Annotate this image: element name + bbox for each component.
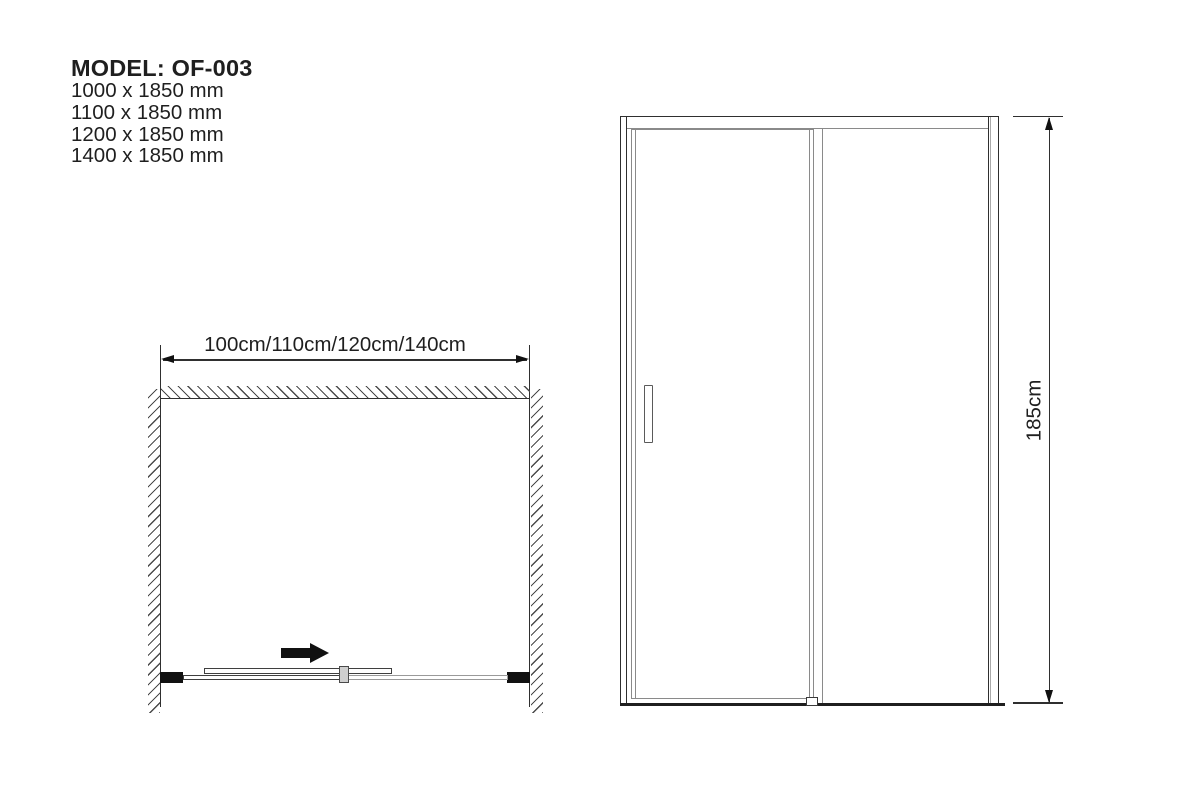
size-option: 1000 x 1850 mm — [71, 80, 224, 102]
size-option: 1400 x 1850 mm — [71, 145, 224, 167]
dimension-arrowhead-up-icon — [1045, 117, 1053, 130]
door-handle — [644, 385, 654, 443]
sliding-door-panel — [631, 129, 814, 700]
dimension-arrowhead-down-icon — [1045, 690, 1053, 703]
panel-clip — [339, 666, 350, 683]
dimension-arrowhead-right-icon — [516, 355, 529, 363]
slide-direction-arrowhead-icon — [310, 643, 329, 663]
dimension-arrowhead-left-icon — [161, 355, 174, 363]
sliding-panel-plan — [204, 668, 392, 674]
plan-dimension-line — [163, 359, 527, 360]
wall-hatch-top — [161, 386, 530, 399]
height-dimension-tick-bottom — [1013, 702, 1063, 703]
top-rail — [620, 116, 999, 129]
door-stile-right-line — [809, 130, 810, 699]
door-roller — [806, 697, 819, 707]
track-rail-plan — [347, 675, 508, 680]
height-dimension-label: 185cm — [1023, 368, 1046, 452]
technical-drawing-page: MODEL: OF-003 1000 x 1850 mm 1100 x 1850… — [0, 0, 1200, 800]
plan-width-dimension-label: 100cm/110cm/120cm/140cm — [150, 333, 520, 357]
page-title: MODEL: OF-003 — [71, 55, 252, 82]
slide-direction-arrow-icon — [281, 648, 311, 658]
fixed-panel-edge-line — [822, 129, 823, 705]
door-stile-left-line — [635, 130, 636, 699]
size-list: 1000 x 1850 mm 1100 x 1850 mm 1200 x 185… — [71, 80, 224, 167]
fixed-panel-plan — [183, 675, 341, 680]
wall-anchor-left — [160, 672, 183, 684]
wall-profile-right — [988, 116, 999, 706]
wall-hatch-right — [531, 389, 543, 713]
wall-profile-right-inner-line — [990, 117, 991, 705]
size-option: 1100 x 1850 mm — [71, 102, 224, 124]
height-dimension-line — [1049, 118, 1050, 702]
height-dimension-tick-top — [1013, 116, 1063, 117]
wall-profile-left — [620, 116, 627, 706]
size-option: 1200 x 1850 mm — [71, 124, 224, 146]
wall-anchor-right — [507, 672, 530, 684]
wall-hatch-left — [148, 389, 160, 713]
